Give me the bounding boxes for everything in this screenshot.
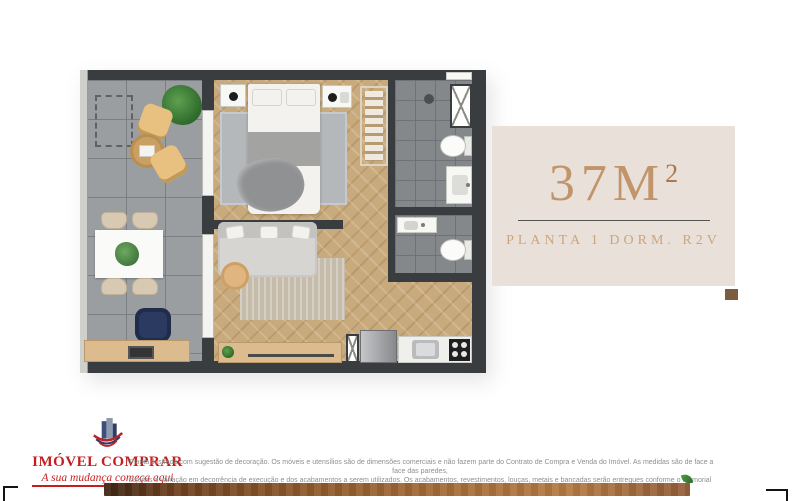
wood-shelf-bar (104, 483, 690, 496)
bed (248, 84, 320, 214)
basin (416, 343, 435, 356)
dining-chair (101, 212, 127, 229)
dining-chair (132, 278, 158, 295)
burner-icon (452, 342, 458, 348)
nightstand (220, 84, 246, 107)
building-swoosh-icon (86, 418, 130, 448)
frame-corner-bottom-right (766, 489, 788, 501)
panel-divider (518, 220, 710, 221)
faucet-icon (421, 223, 425, 227)
apartment-floorplan (78, 60, 490, 375)
small-plant-icon (222, 346, 234, 358)
pillow (286, 89, 316, 106)
frame-corner-bottom-left (3, 486, 18, 501)
cooktop (449, 339, 470, 361)
bathroom-sink (446, 166, 472, 204)
glass-sliding-door-living (202, 234, 214, 338)
shower-glass-box (450, 84, 472, 128)
burner-icon (452, 351, 458, 357)
decor-object (340, 92, 349, 103)
wall-top (80, 70, 482, 80)
disclaimer-line-1: *Planta ilustrada com sugestão de decora… (125, 458, 715, 476)
plan-subtitle: PLANTA 1 DORM. R2V (492, 233, 735, 249)
wall-below-lavabo (388, 273, 472, 282)
burner-icon (461, 351, 467, 357)
service-shaft (346, 334, 359, 363)
page: 37M2 PLANTA 1 DORM. R2V IMÓVEL COMPRAR A… (0, 0, 793, 501)
lamp-icon (229, 92, 238, 101)
faucet-icon (466, 183, 470, 187)
area-number: 37M (549, 155, 665, 212)
lavabo-toilet (440, 239, 466, 261)
wall-segment (202, 338, 214, 361)
lavabo-sink (397, 217, 437, 233)
pillow (252, 89, 282, 106)
balcony-railing (80, 70, 88, 373)
burner-icon (461, 342, 467, 348)
kitchen-sink (412, 340, 439, 359)
lamp-icon (328, 93, 337, 102)
nightstand (322, 85, 352, 108)
sofa-pillow (260, 226, 278, 239)
wardrobe (360, 86, 388, 166)
table-plant-icon (115, 242, 139, 266)
office-chair (135, 308, 171, 342)
wall-bathrooms-left (388, 80, 395, 281)
wall-right (472, 70, 486, 373)
sofa-pillow (291, 225, 311, 240)
toilet (440, 135, 466, 157)
dining-chair (132, 212, 158, 229)
soundbar (248, 354, 334, 357)
area-value: 37M2 (492, 146, 735, 212)
panel-accent-square (725, 289, 738, 300)
shower-head-icon (424, 94, 434, 104)
refrigerator (360, 330, 397, 363)
area-info-panel: 37M2 PLANTA 1 DORM. R2V (492, 126, 735, 286)
side-table (221, 262, 249, 290)
basin (404, 221, 418, 230)
wall-segment (202, 80, 214, 110)
laptop (128, 346, 154, 359)
ac-unit-outline (95, 95, 133, 147)
glass-sliding-door-bedroom (202, 110, 214, 196)
window (446, 72, 472, 80)
sofa-pillow (225, 225, 245, 240)
wall-between-bathrooms (388, 207, 472, 215)
area-superscript: 2 (665, 159, 678, 188)
dining-chair (101, 278, 127, 295)
sideboard (218, 342, 342, 363)
